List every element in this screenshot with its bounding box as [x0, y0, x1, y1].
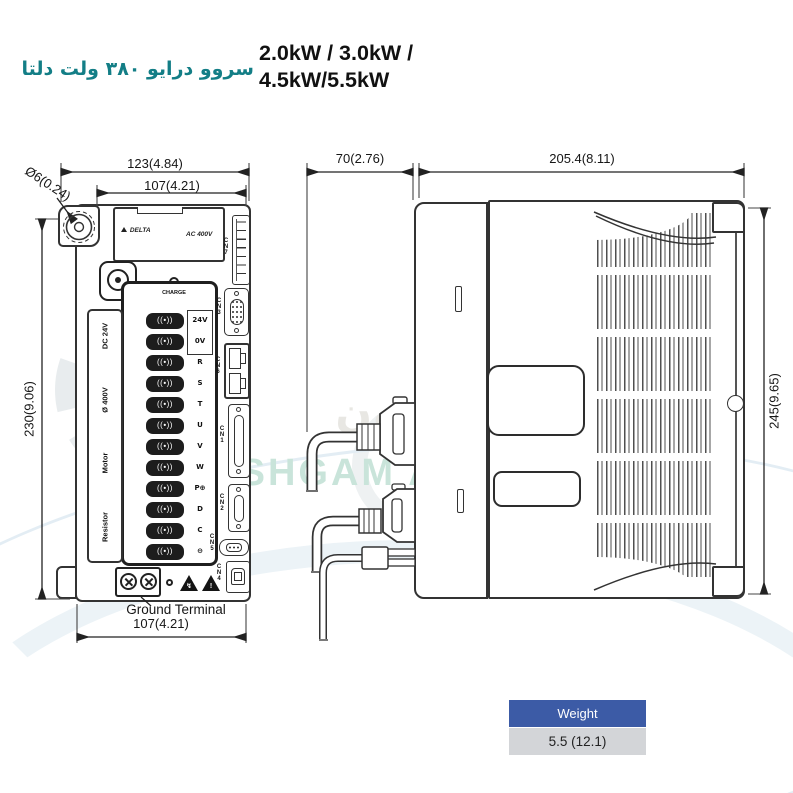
terminal-label-u: U	[187, 422, 213, 429]
side-cutout-small	[493, 471, 581, 507]
group-label-resistor: Resistor	[101, 512, 110, 542]
rj45-jack-bottom-tab	[241, 378, 246, 389]
dim-side-height: 245(9.65)	[767, 373, 782, 429]
nameplate-voltage: AC 400V	[186, 231, 212, 238]
page-title-power-ratings: 2.0kW / 3.0kW / 4.5kW/5.5kW	[259, 40, 413, 94]
title-line-1: 2.0kW / 3.0kW /	[259, 40, 413, 67]
charge-label: CHARGE	[150, 290, 198, 296]
cn1-label: CN1	[219, 426, 225, 444]
side-flange-bottom	[712, 566, 745, 597]
cn6-label: CN6	[215, 357, 221, 375]
dim-side-body-depth: 205.4(8.11)	[522, 151, 642, 166]
terminal-label-r: R	[187, 359, 213, 366]
dimension-drawing-page: پیشگام اتوماسیون PISHGAM AUTOMATION سروو…	[0, 0, 793, 793]
group-label-dc24v: DC 24V	[101, 323, 110, 349]
weight-table-header: Weight	[509, 700, 646, 727]
ground-terminal-label: Ground Terminal	[103, 602, 249, 617]
cn2-label: CN2	[219, 494, 225, 512]
group-label-ac400v: Ø 400V	[101, 387, 110, 412]
dim-front-width-bottom: 107(4.21)	[101, 616, 221, 631]
rj45-jack-bottom	[229, 373, 241, 394]
cn3-label: CN3	[216, 298, 222, 316]
ground-screw-icon	[140, 573, 157, 590]
screw-terminal-icon	[146, 313, 184, 329]
screw-terminal-icon	[146, 355, 184, 371]
cn2-screw-top	[236, 487, 241, 492]
side-view-bezel	[414, 202, 488, 599]
terminal-label-0v: 0V	[187, 338, 213, 345]
terminal-label-v: V	[187, 443, 213, 450]
terminal-label-w: W	[187, 464, 213, 471]
rj45-jack-top	[229, 348, 241, 369]
screw-terminal-icon	[146, 460, 184, 476]
screw-terminal-icon	[146, 397, 184, 413]
screw-terminal-icon	[146, 418, 184, 434]
side-mount-hole-icon	[727, 395, 744, 412]
bezel-slot-top	[455, 286, 462, 312]
screw-terminal-icon	[146, 502, 184, 518]
brand-logo: DELTA	[121, 227, 151, 234]
terminal-label-s: S	[187, 380, 213, 387]
terminal-label-t: T	[187, 401, 213, 408]
screw-terminal-icon	[146, 523, 184, 539]
dim-side-front-depth: 70(2.76)	[300, 151, 420, 166]
cn2-screw-bottom	[236, 524, 241, 529]
front-screw-dot	[115, 277, 121, 283]
front-bottom-tab	[56, 566, 77, 599]
warning-lightning-icon: ↯	[180, 575, 198, 591]
cn1-screw-top	[236, 407, 241, 412]
cn4-usb-inner	[234, 572, 242, 581]
weight-table-value: 5.5 (12.1)	[509, 728, 646, 755]
screw-terminal-icon	[146, 439, 184, 455]
cover-notch	[137, 207, 183, 214]
terminal-label-p: P⊕	[187, 485, 213, 492]
cn3-pins	[230, 299, 244, 325]
ground-screw-icon	[120, 573, 137, 590]
status-dot-icon	[166, 579, 173, 586]
cn1-screw-bottom	[236, 469, 241, 474]
cn2-slot	[234, 495, 244, 522]
front-mounting-ear	[58, 205, 100, 247]
rj45-jack-top-tab	[241, 353, 246, 364]
screw-terminal-icon	[146, 544, 184, 560]
screw-terminal-icon	[146, 481, 184, 497]
screw-terminal-icon	[146, 376, 184, 392]
brand-text: DELTA	[130, 227, 151, 234]
cn3-screw-bottom	[234, 328, 239, 333]
dim-front-width-inner: 107(4.21)	[112, 178, 232, 193]
cn1-slot	[234, 415, 244, 467]
weight-table: Weight 5.5 (12.1)	[509, 700, 646, 755]
cn4-label: CN4	[216, 564, 222, 582]
cn5-pins	[226, 543, 242, 552]
dim-front-width-outer: 123(4.84)	[95, 156, 215, 171]
cn7-label: CN7	[223, 238, 229, 256]
side-cutout-large	[487, 365, 585, 436]
page-title-farsi: سروو درایو ۳۸۰ ولت دلتا	[22, 58, 254, 80]
heatsink-vents	[597, 213, 714, 585]
dim-front-height: 230(9.06)	[22, 381, 37, 437]
title-line-2: 4.5kW/5.5kW	[259, 67, 413, 94]
cn3-screw-top	[234, 291, 239, 296]
cn7-pins	[236, 219, 246, 281]
terminal-label-d: D	[187, 506, 213, 513]
terminal-label-24v: 24V	[187, 317, 213, 324]
cn5-label: CN5	[209, 534, 215, 552]
group-label-motor: Motor	[101, 453, 110, 474]
screw-terminal-icon	[146, 334, 184, 350]
terminal-label-c: C	[187, 527, 213, 534]
dim-mounting-hole: Ø6(0.24)	[10, 155, 85, 211]
bezel-slot-bottom	[457, 489, 464, 513]
side-flange-top	[712, 202, 745, 233]
